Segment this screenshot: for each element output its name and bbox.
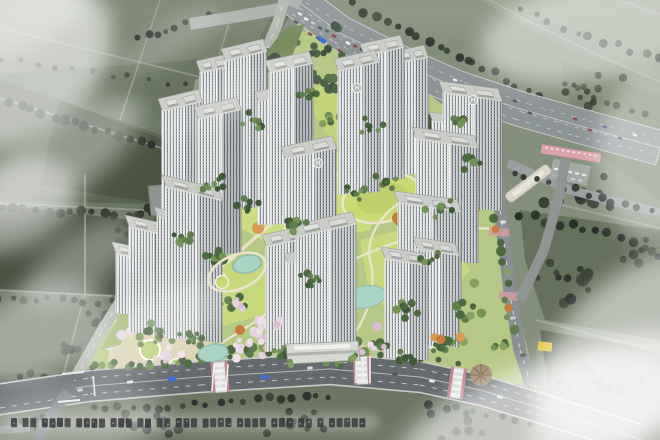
svg-text:H: H <box>316 161 320 167</box>
svg-text:H: H <box>471 98 475 104</box>
svg-text:H: H <box>355 86 359 92</box>
